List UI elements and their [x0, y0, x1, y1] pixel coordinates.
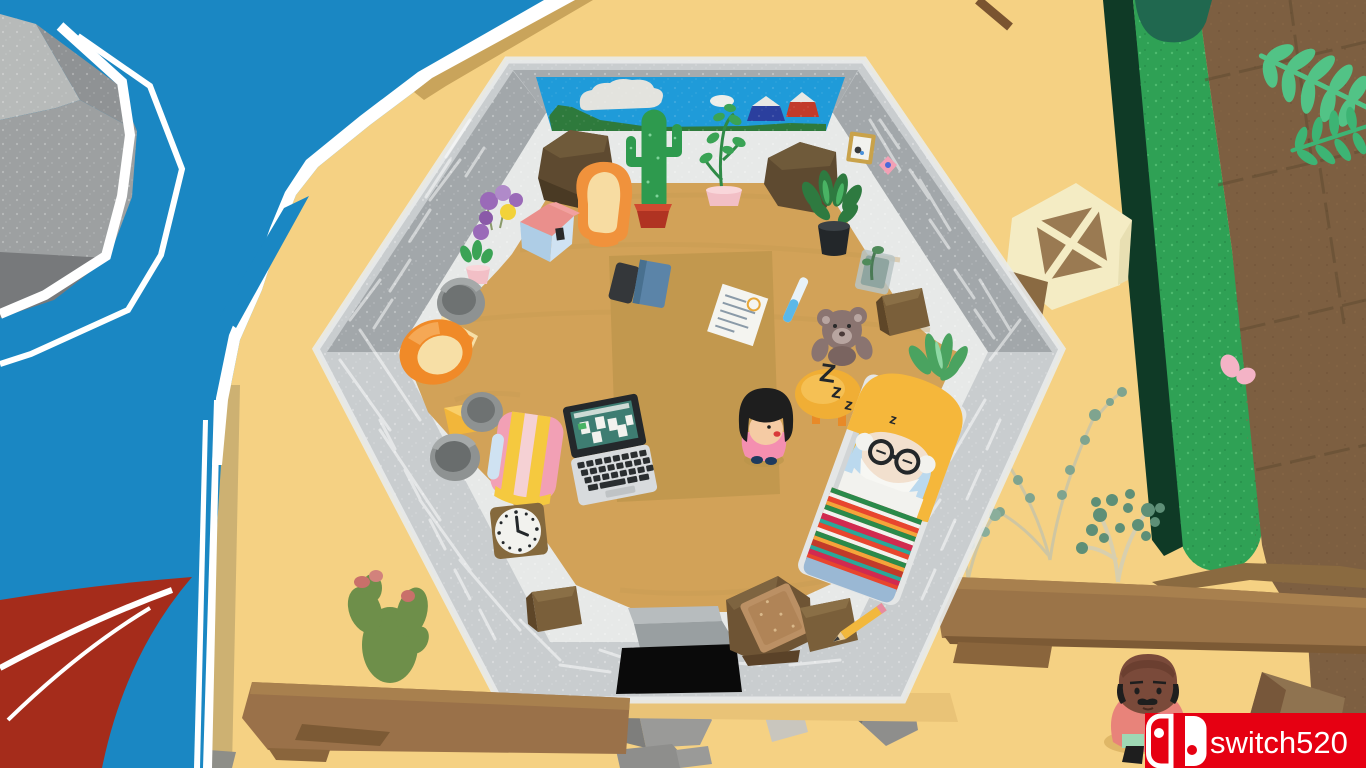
svg-text:switch520: switch520	[1210, 725, 1348, 760]
